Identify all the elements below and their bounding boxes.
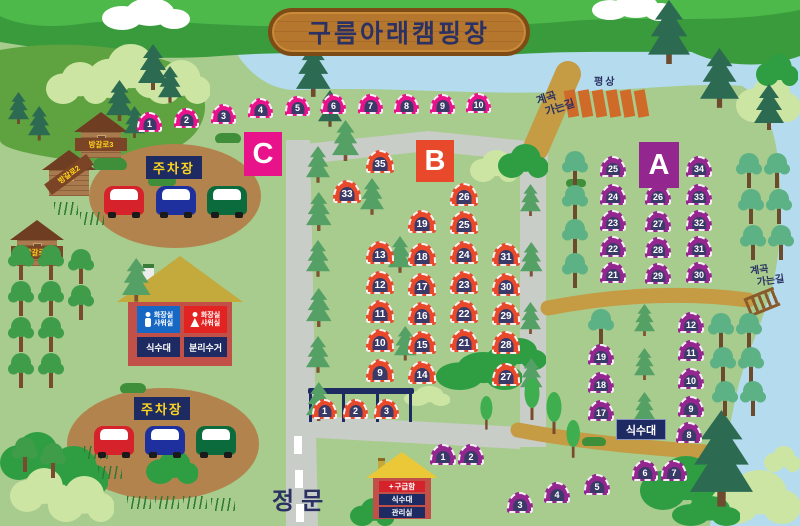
parking-lot-south <box>67 388 259 500</box>
cloud-icon <box>592 0 675 21</box>
map-base <box>0 0 800 526</box>
campground-map: 화장실샤워실 화장실샤워실 식수대 분리수거 + 구급함 식수대 관리실 <box>0 0 800 526</box>
parking-lot-north <box>89 144 261 248</box>
